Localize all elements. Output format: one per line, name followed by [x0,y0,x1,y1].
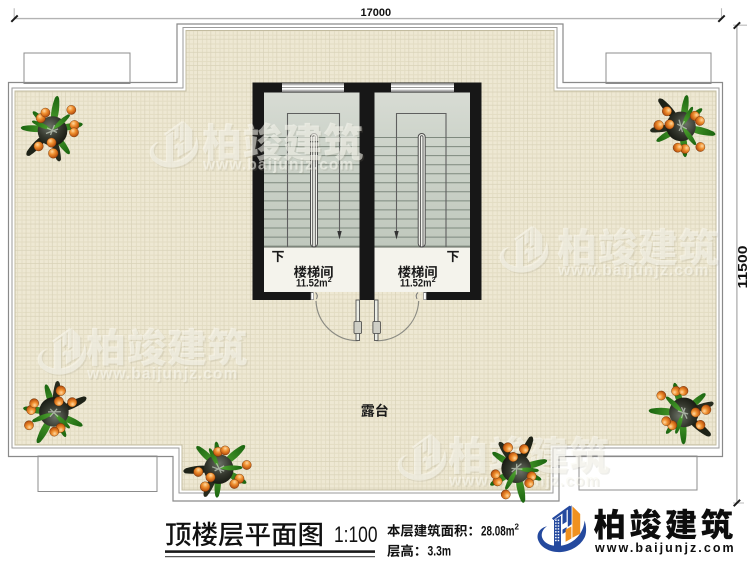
svg-text:www.baijunjz.com: www.baijunjz.com [557,262,709,279]
svg-text:28.08m: 28.08m [481,524,515,539]
svg-text:2: 2 [328,277,332,284]
svg-text:2: 2 [432,277,436,284]
svg-text:2: 2 [515,523,520,532]
svg-text:11500: 11500 [736,245,750,288]
svg-text:11.52m: 11.52m [296,278,328,290]
svg-text:17000: 17000 [361,7,392,19]
svg-text:www.baijunjz.com: www.baijunjz.com [594,541,736,555]
svg-text:1:100: 1:100 [334,522,378,547]
svg-text:3.3m: 3.3m [428,544,452,559]
svg-text:www.baijunjz.com: www.baijunjz.com [202,157,354,174]
svg-text:www.baijunjz.com: www.baijunjz.com [86,366,238,383]
svg-text:11.52m: 11.52m [400,278,432,290]
